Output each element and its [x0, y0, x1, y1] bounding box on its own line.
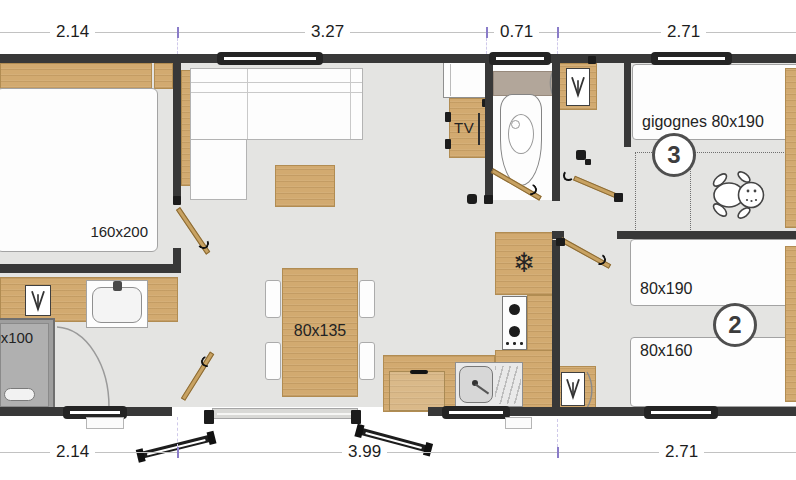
bedroom2-number: 2: [728, 311, 741, 339]
wall-kitchen: [552, 240, 560, 407]
wall-wc-left: [485, 63, 493, 203]
bedroom3-badge: 3: [652, 133, 696, 177]
window: [651, 52, 732, 65]
drawer-handle: [410, 370, 428, 374]
door-hinge: [556, 238, 565, 246]
bedroom3-number: 3: [667, 141, 680, 169]
entry-step: [505, 417, 532, 429]
tv-bracket: [445, 139, 451, 149]
entry-step: [86, 417, 124, 429]
dim-guide: [557, 38, 558, 54]
snowflake-icon: ❄: [509, 247, 539, 279]
window-glass: [70, 411, 120, 414]
dim-tick: [177, 447, 179, 458]
door-hinge: [614, 193, 623, 202]
baby-icon: [700, 164, 770, 226]
kitchen-counter-mid: [527, 295, 553, 351]
wall-wc-right: [552, 63, 560, 201]
door-cap: [207, 431, 217, 445]
chair: [359, 280, 375, 318]
dim-guide: [486, 38, 487, 54]
window-glass: [651, 411, 711, 414]
bay-window: [212, 408, 358, 419]
burner: [509, 304, 520, 315]
wall-bedroom1: [173, 63, 181, 203]
window: [489, 52, 551, 65]
window: [644, 406, 718, 419]
dining-table-label: 80x135: [282, 322, 358, 340]
dim-top-2: 3.27: [305, 22, 350, 42]
wardrobe-right: [785, 68, 796, 228]
bathroom-cabinet: [25, 285, 51, 316]
dim-tick: [486, 27, 488, 38]
shower-drain: [4, 388, 35, 401]
water-heater-box: [566, 68, 590, 106]
water-heater-icon: [569, 73, 587, 101]
wall-bedrooms-divider: [617, 231, 796, 239]
sofa-cushion-line: [247, 69, 248, 139]
wall-bathroom: [0, 264, 181, 273]
door-hinge: [467, 194, 477, 204]
dim-top-3: 0.71: [494, 22, 539, 42]
door-swing-arc: [54, 326, 112, 410]
window-glass: [224, 57, 316, 60]
hob-knob: [520, 342, 523, 345]
faucet-icon: [113, 281, 122, 291]
dim-bottom-1: 2.14: [50, 442, 95, 462]
window-glass: [217, 413, 353, 415]
tv-bracket: [445, 112, 451, 122]
door-cap: [136, 448, 146, 462]
window-glass: [658, 57, 725, 60]
cabinet-door-arc: [585, 371, 597, 409]
bedroom2-bed-large-label: 80x190: [640, 280, 693, 298]
boiler-box: [561, 372, 585, 406]
headboard-shelf-end: [154, 63, 173, 89]
burner: [509, 326, 520, 337]
bedroom2-badge: 2: [713, 303, 757, 347]
door-hinge: [484, 195, 493, 204]
chair: [359, 342, 375, 380]
dim-bottom-3: 2.71: [659, 442, 704, 462]
bedroom3-bed-label: gigognes 80x190: [642, 113, 764, 131]
sofa-cushion-line: [191, 92, 362, 93]
dim-tick: [557, 27, 559, 38]
headboard-shelf: [0, 63, 152, 89]
wall-bedroom3-left: [624, 63, 631, 147]
hob-knob: [506, 342, 509, 345]
door-stop: [585, 159, 591, 165]
sink-drainer: [495, 366, 521, 404]
dim-top-1: 2.14: [50, 22, 95, 42]
water-heater-icon: [29, 289, 47, 313]
wardrobe-right: [785, 246, 796, 402]
door-frame: [351, 410, 361, 424]
tv-divider: [478, 113, 480, 145]
kitchen-cabinet-front: [389, 371, 445, 411]
door-hinge: [173, 196, 181, 205]
door-frame: [204, 410, 214, 424]
toilet-flush: [511, 120, 520, 129]
door-cap: [423, 442, 433, 456]
dim-guide: [177, 417, 178, 447]
vanity-basin: [92, 287, 142, 323]
sofa-cushion-line: [350, 69, 351, 139]
tv-cabinet-line: [450, 64, 451, 96]
dim-guide: [557, 419, 558, 447]
dim-tick: [557, 447, 559, 458]
toilet-tank: [493, 71, 553, 96]
window-glass: [449, 411, 503, 414]
dim-tick: [177, 27, 179, 38]
shower-label: 80x100: [0, 329, 33, 346]
chair: [265, 342, 281, 380]
door-handle-icon: [563, 170, 574, 181]
water-heater-icon: [564, 376, 582, 402]
coffee-table: [275, 165, 335, 207]
sofa-seat: [190, 68, 363, 140]
window-glass: [496, 57, 544, 60]
tv-label: TV: [454, 119, 474, 136]
dim-guide: [177, 38, 178, 54]
dim-bottom-2: 3.99: [342, 442, 387, 462]
door-cap: [354, 424, 364, 438]
hob-knob: [513, 342, 516, 345]
bedroom2-bed-small-label: 80x160: [640, 342, 693, 360]
master-bed-label: 160x200: [84, 223, 148, 240]
sofa-cushion-line: [191, 82, 362, 83]
chair: [265, 280, 281, 318]
window: [442, 406, 510, 419]
floor-plan: 160x200 80x100 80x135 TV: [0, 0, 796, 480]
window: [217, 52, 323, 65]
door-hinge: [588, 56, 596, 64]
dim-top-4: 2.71: [661, 22, 706, 42]
